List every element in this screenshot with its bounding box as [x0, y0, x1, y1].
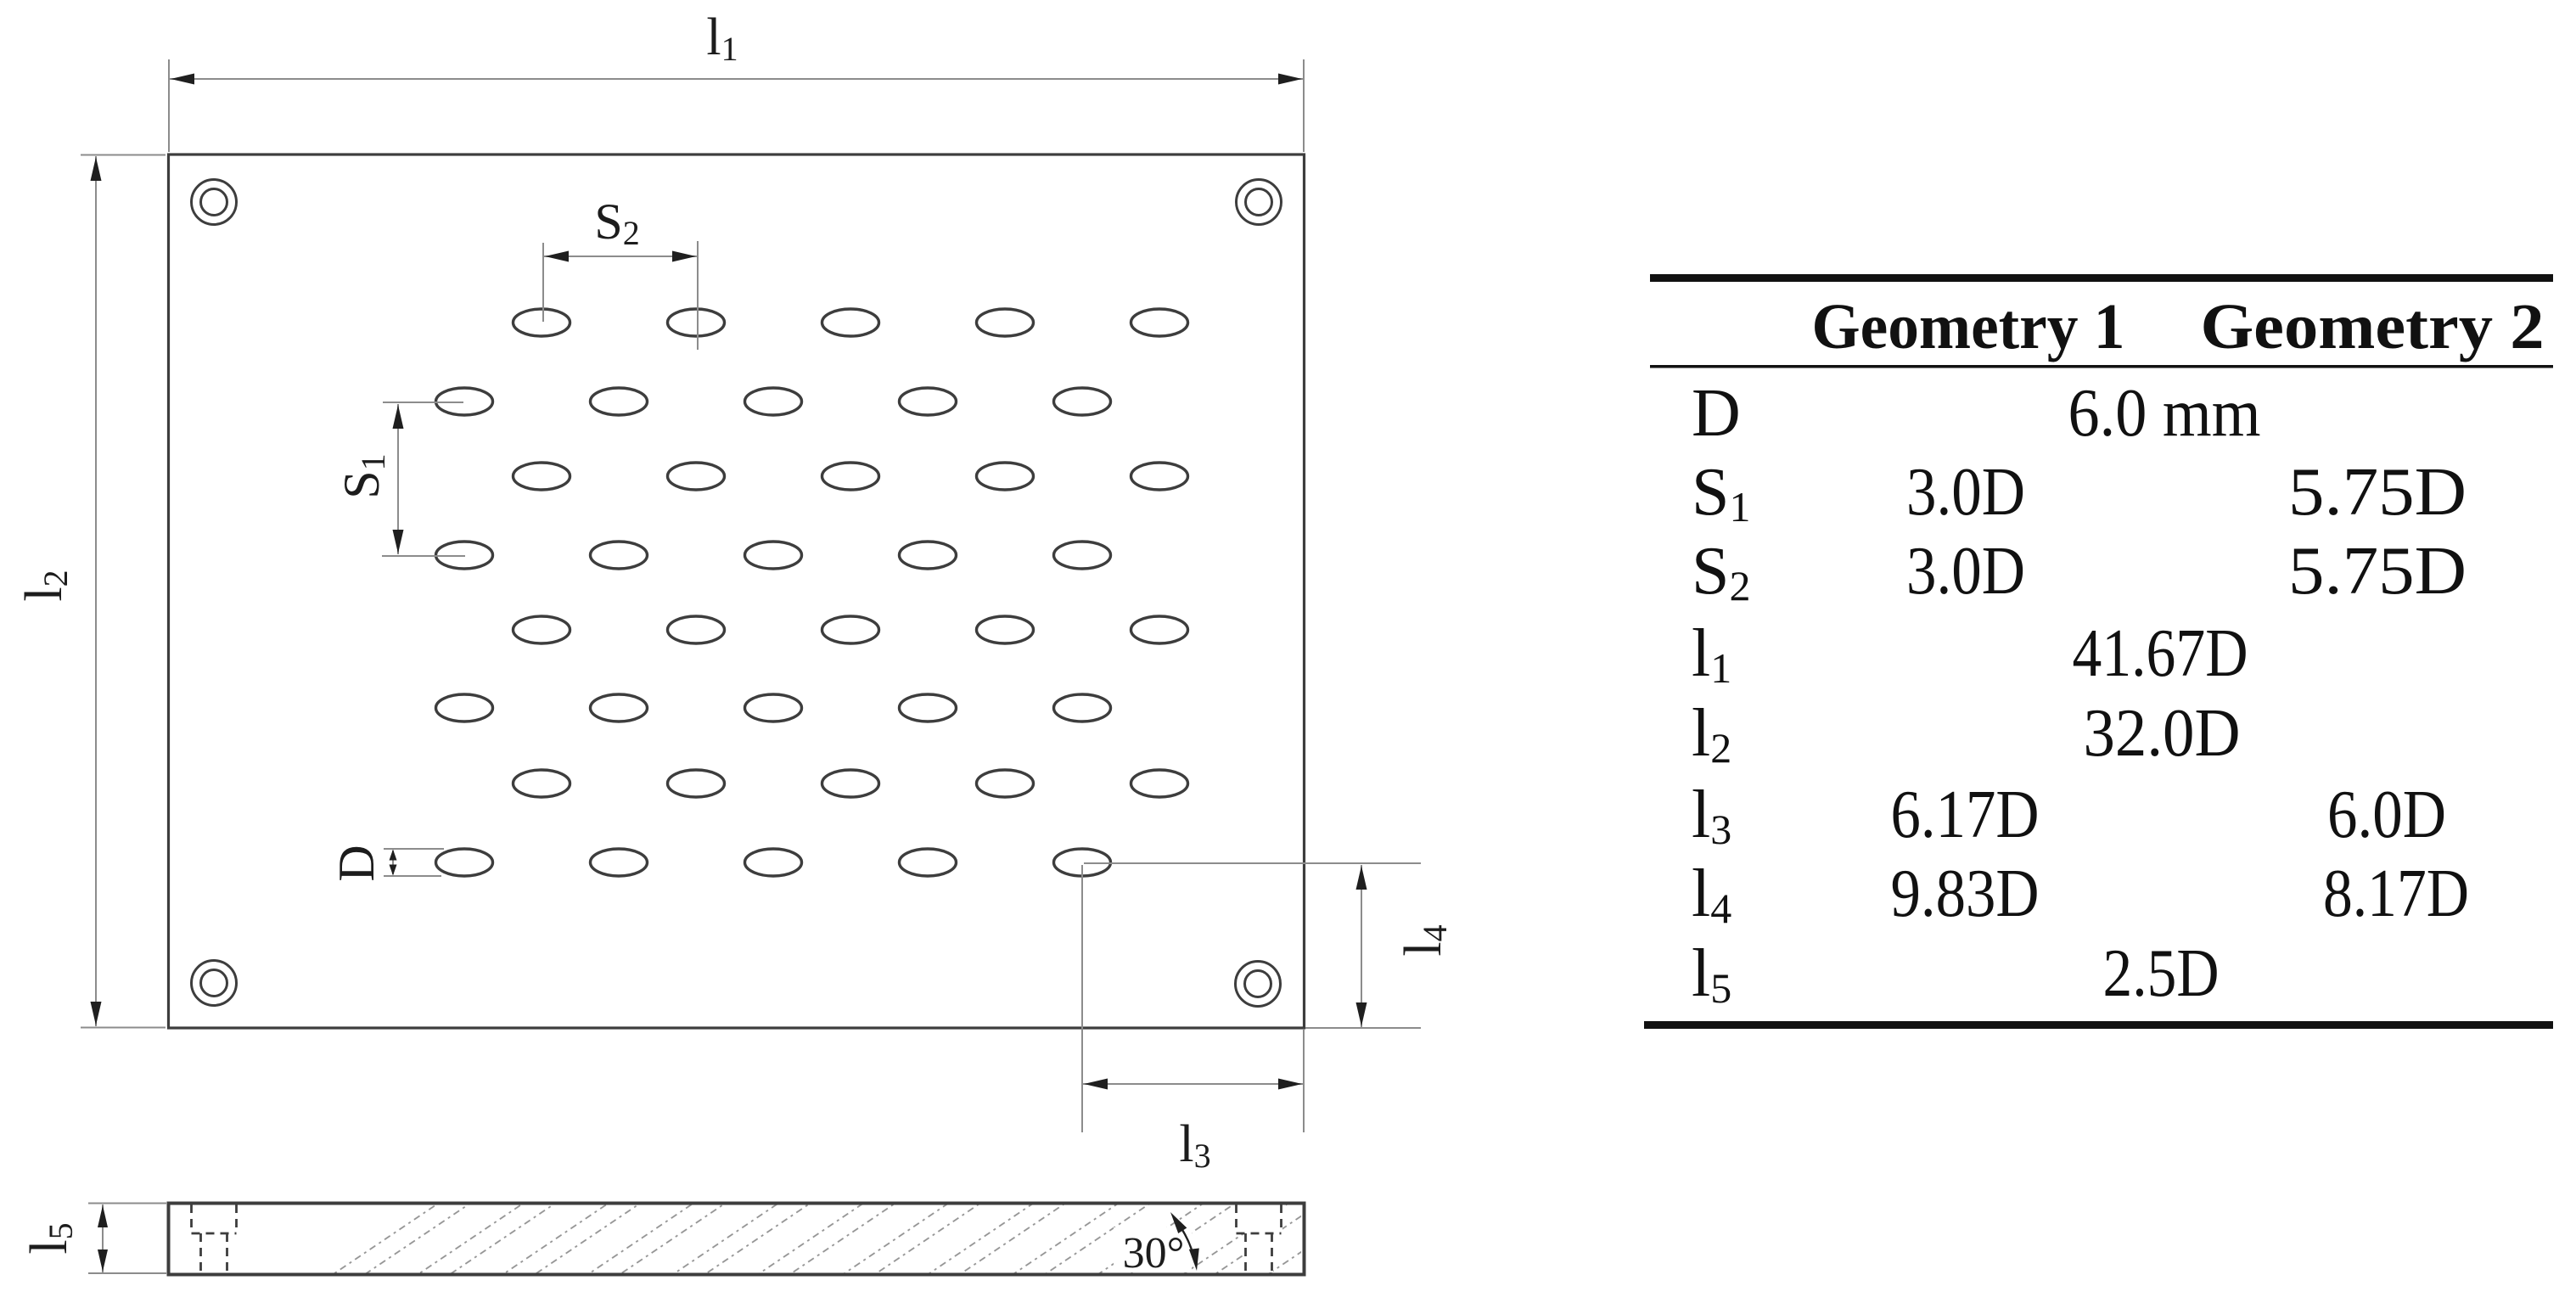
svg-text:l2: l2 — [1692, 696, 1731, 772]
svg-text:3.0D: 3.0D — [1906, 534, 2025, 609]
svg-text:l3: l3 — [1179, 1115, 1210, 1175]
svg-text:l5: l5 — [1692, 936, 1731, 1012]
svg-text:6.0 mm: 6.0 mm — [2068, 376, 2261, 451]
svg-text:5.75D: 5.75D — [2288, 534, 2467, 609]
svg-text:41.67D: 41.67D — [2073, 616, 2248, 691]
svg-text:S2: S2 — [1692, 534, 1751, 609]
svg-text:l5: l5 — [20, 1222, 80, 1254]
svg-text:3.0D: 3.0D — [1906, 455, 2025, 530]
svg-text:l1: l1 — [1692, 616, 1731, 692]
svg-text:Geometry 1: Geometry 1 — [1812, 291, 2125, 362]
svg-text:D: D — [1692, 376, 1741, 451]
svg-text:D: D — [328, 845, 384, 881]
svg-text:l3: l3 — [1692, 778, 1731, 853]
svg-text:5.75D: 5.75D — [2288, 455, 2467, 530]
svg-text:l1: l1 — [706, 8, 738, 68]
svg-text:S1: S1 — [334, 453, 392, 498]
svg-text:32.0D: 32.0D — [2084, 696, 2241, 771]
svg-text:l2: l2 — [15, 570, 75, 601]
svg-text:l4: l4 — [1692, 856, 1731, 932]
svg-text:S1: S1 — [1692, 455, 1751, 531]
svg-text:Geometry 2: Geometry 2 — [2201, 291, 2545, 362]
svg-text:6.17D: 6.17D — [1891, 778, 2040, 852]
svg-text:2.5D: 2.5D — [2103, 936, 2220, 1011]
svg-text:l4: l4 — [1395, 924, 1454, 956]
svg-text:S2: S2 — [594, 194, 639, 252]
svg-text:9.83D: 9.83D — [1891, 856, 2040, 931]
svg-text:8.17D: 8.17D — [2323, 856, 2469, 931]
svg-text:30°: 30° — [1123, 1229, 1185, 1277]
svg-text:6.0D: 6.0D — [2327, 778, 2446, 852]
